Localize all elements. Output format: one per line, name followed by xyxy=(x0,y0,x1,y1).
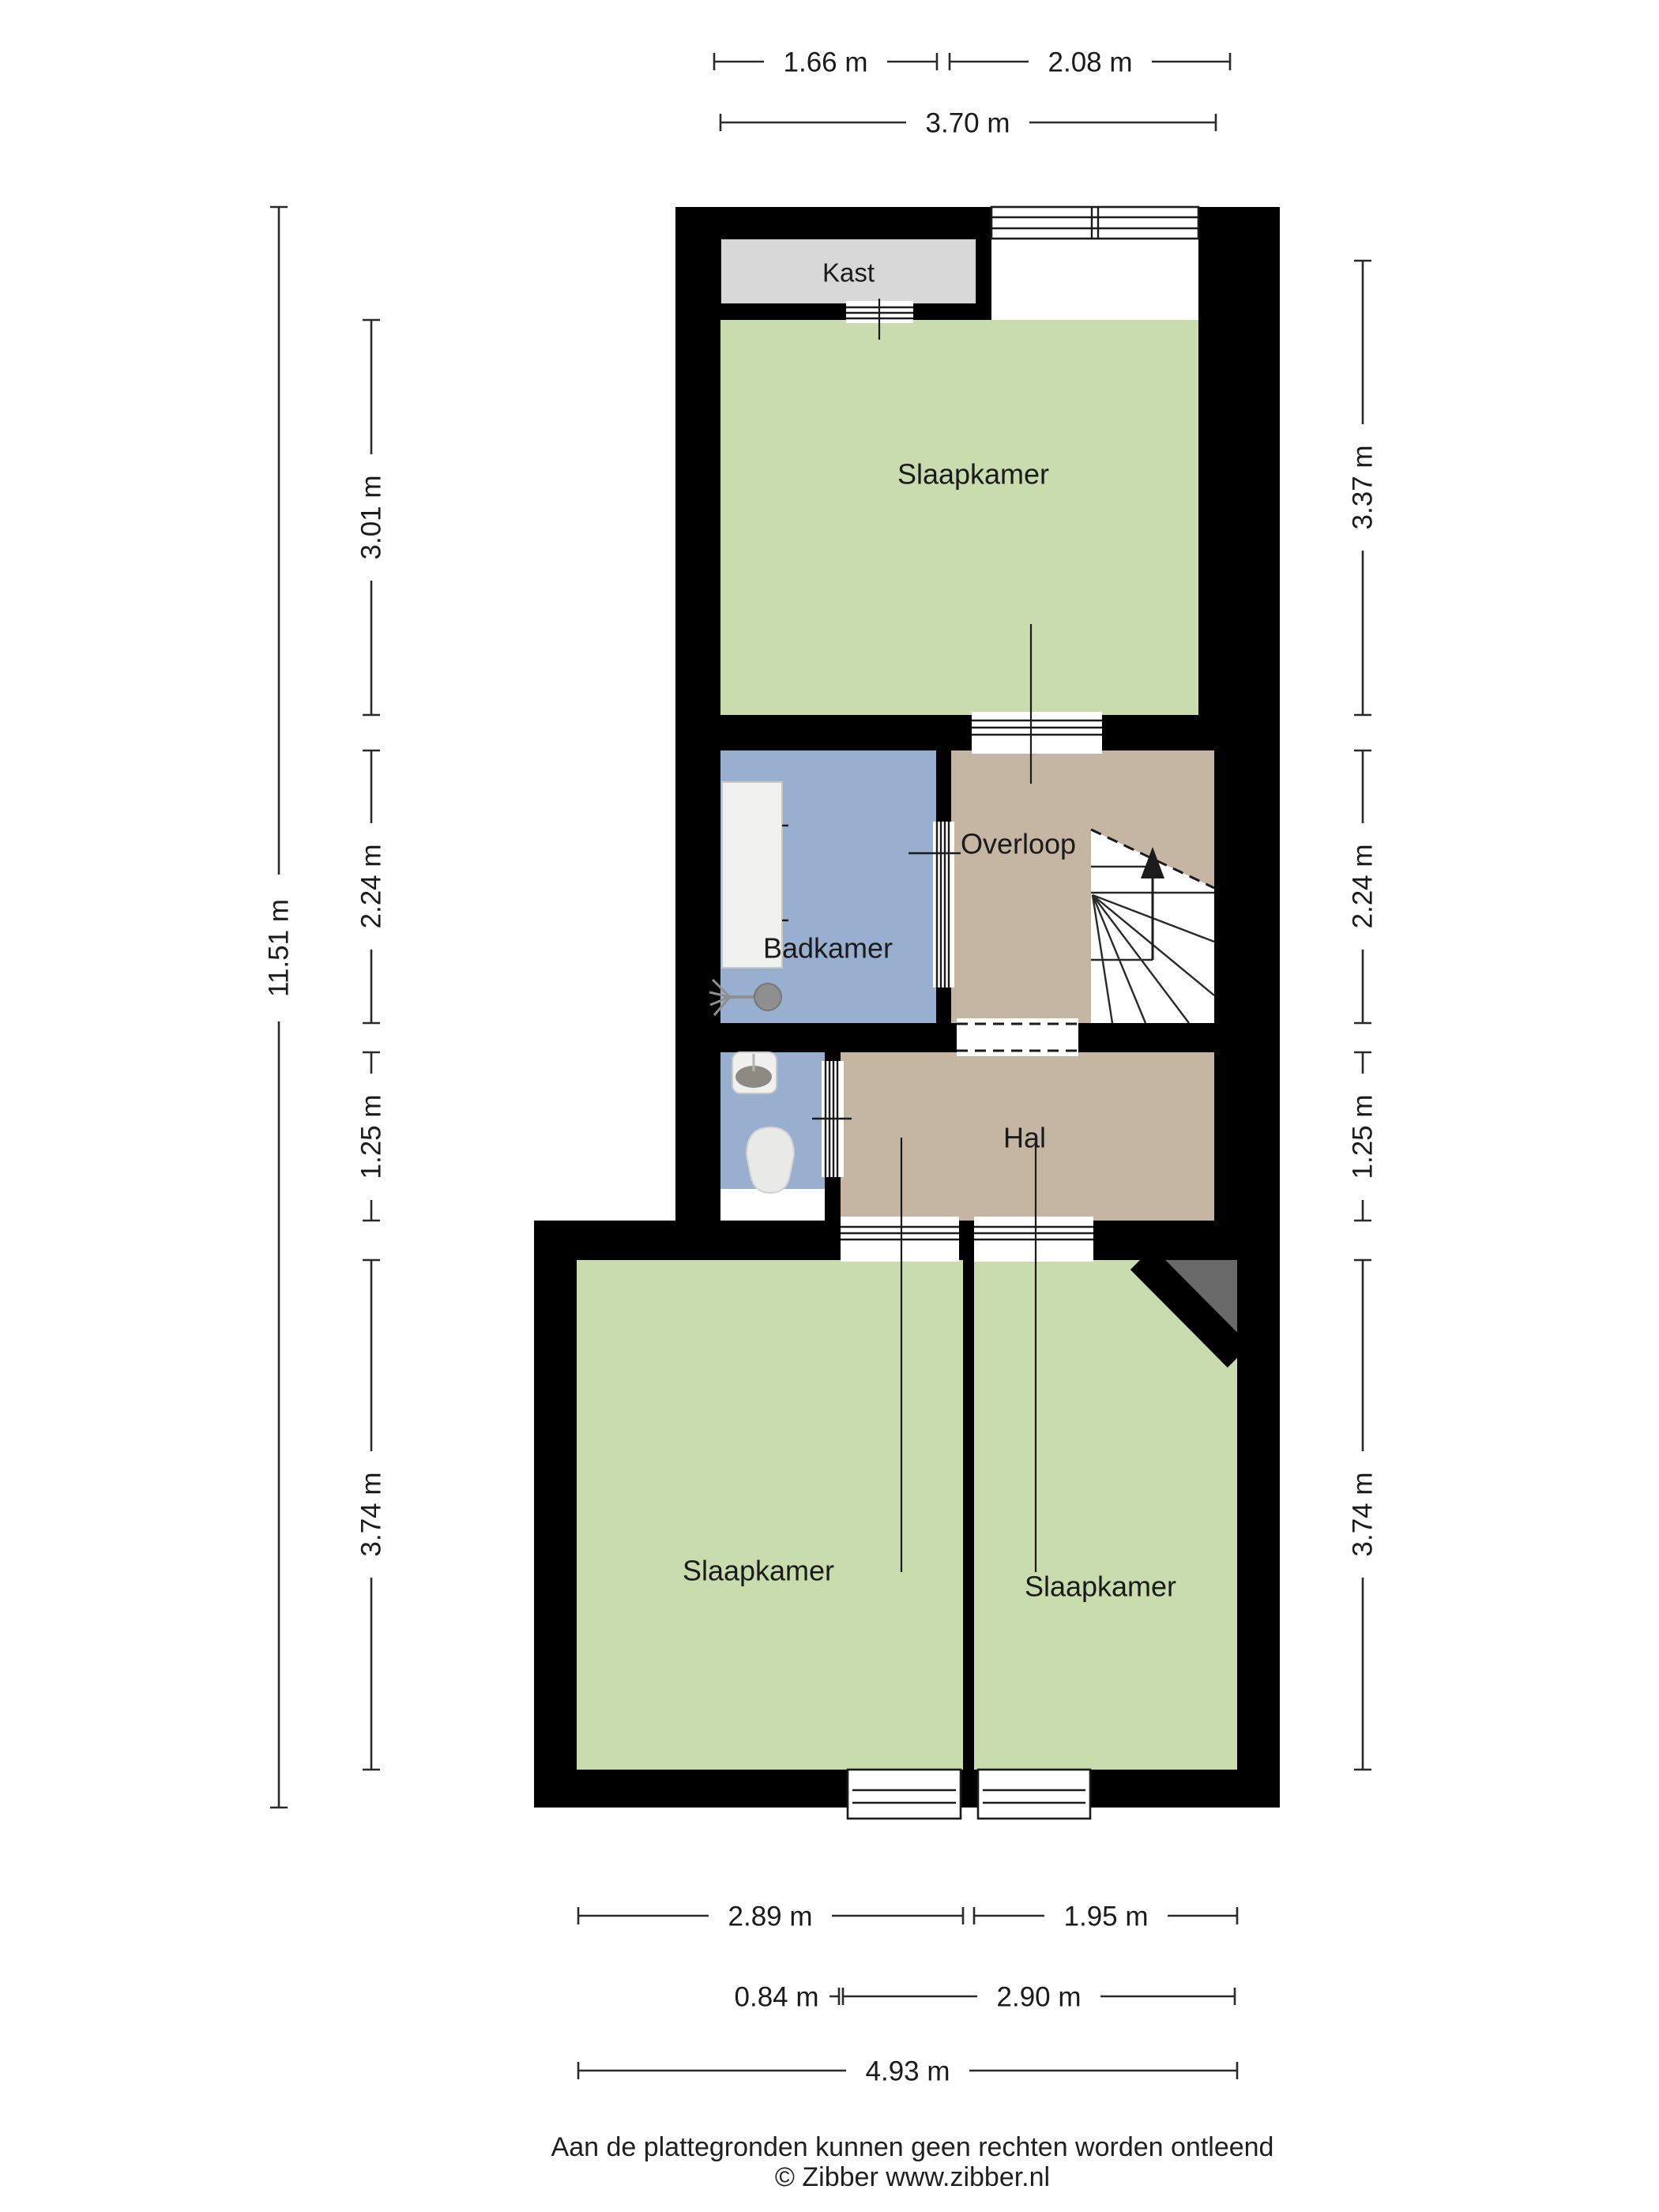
dim-bottom-row1-segment2: 1.95 m xyxy=(974,1899,1237,1932)
window-frame xyxy=(991,207,1198,239)
dim-label: 3.01 m xyxy=(356,476,387,560)
dim-right-segment1: 3.37 m xyxy=(1346,261,1379,715)
dim-left-segment3: 1.25 m xyxy=(355,1052,388,1221)
dim-label: 3.74 m xyxy=(356,1473,387,1557)
wall-right-lower xyxy=(1237,1221,1280,1808)
room-slaapkamer-boven xyxy=(720,320,1198,715)
label-overloop: Overloop xyxy=(961,828,1076,860)
toilet-fixture xyxy=(747,1127,794,1193)
label-hal: Hal xyxy=(1003,1122,1046,1154)
label-slaapkamer-links: Slaapkamer xyxy=(683,1555,834,1587)
dim-label: 3.74 m xyxy=(1348,1473,1379,1557)
dim-left-segment1: 3.01 m xyxy=(355,320,388,715)
wall-right-upper xyxy=(1198,207,1280,750)
window-bottom-left xyxy=(848,1770,961,1819)
window-top xyxy=(991,207,1198,239)
shower-head-icon xyxy=(754,984,781,1010)
dim-label: 1.95 m xyxy=(1064,1902,1149,1932)
dim-bottom-row1-segment1: 2.89 m xyxy=(578,1899,963,1932)
window-frame xyxy=(848,1770,961,1819)
footer-disclaimer: Aan de plattegronden kunnen geen rechten… xyxy=(551,2132,1274,2162)
label-kast: Kast xyxy=(822,258,875,288)
dim-label: 1.25 m xyxy=(356,1095,387,1179)
label-slaapkamer-boven: Slaapkamer xyxy=(897,458,1049,491)
dim-bottom-total: 4.93 m xyxy=(578,2054,1237,2087)
dim-right-segment4: 3.74 m xyxy=(1346,1260,1379,1770)
dim-label: 0.84 m xyxy=(735,1982,819,2013)
door-overloop-hal xyxy=(957,1018,1078,1056)
dim-label: 4.93 m xyxy=(866,2056,950,2087)
dim-label: 1.25 m xyxy=(1348,1095,1379,1179)
window-recess xyxy=(991,239,1198,320)
dim-right-segment2: 2.24 m xyxy=(1346,750,1379,1023)
door-opening xyxy=(972,712,1102,754)
dim-label: 11.51 m xyxy=(264,899,295,997)
dim-label: 1.66 m xyxy=(784,47,868,78)
dim-top-total: 3.70 m xyxy=(720,106,1216,139)
dim-left-segment2: 2.24 m xyxy=(355,750,388,1023)
footer: Aan de plattegronden kunnen geen rechten… xyxy=(551,2132,1274,2192)
floorplan-page: Kast Slaapkamer Badkamer Overloop Hal Sl… xyxy=(0,0,1659,2212)
dim-left-segment4: 3.74 m xyxy=(355,1260,388,1770)
footer-copyright: © Zibber www.zibber.nl xyxy=(775,2162,1050,2192)
window-bottom-right xyxy=(978,1770,1090,1819)
dim-label: 2.89 m xyxy=(728,1902,813,1932)
wall-left-lower xyxy=(534,1221,577,1808)
dim-bottom-row2-segment1: 0.84 m xyxy=(719,1980,839,2013)
dim-label: 3.37 m xyxy=(1348,446,1379,530)
dim-top-segment1: 1.66 m xyxy=(714,45,937,78)
dim-left-total: 11.51 m xyxy=(262,207,295,1808)
dim-bottom-row2-segment2: 2.90 m xyxy=(843,1980,1235,2013)
label-badkamer: Badkamer xyxy=(763,932,893,965)
dim-label: 2.24 m xyxy=(1348,845,1379,929)
dim-label: 3.70 m xyxy=(926,108,1010,139)
label-slaapkamer-rechts: Slaapkamer xyxy=(1025,1571,1176,1603)
window-frame xyxy=(978,1770,1090,1819)
wall-bedroom-divider xyxy=(963,1260,974,1808)
floorplan-svg: Kast Slaapkamer Badkamer Overloop Hal Sl… xyxy=(0,0,1659,2212)
dim-label: 2.24 m xyxy=(356,845,387,929)
dim-label: 2.90 m xyxy=(997,1982,1082,2013)
wall-slaapkamer-bottom xyxy=(720,715,1198,750)
dim-top-segment2: 2.08 m xyxy=(950,45,1230,78)
wall-right-middle xyxy=(1214,750,1280,1221)
hand-basin-fixture xyxy=(732,1052,777,1093)
dim-right-segment3: 1.25 m xyxy=(1346,1052,1379,1221)
dim-label: 2.08 m xyxy=(1048,47,1133,78)
wall-left-upper xyxy=(675,207,720,1260)
toilet-floor-strip xyxy=(720,1189,825,1221)
room-slaapkamer-links xyxy=(577,1260,963,1770)
